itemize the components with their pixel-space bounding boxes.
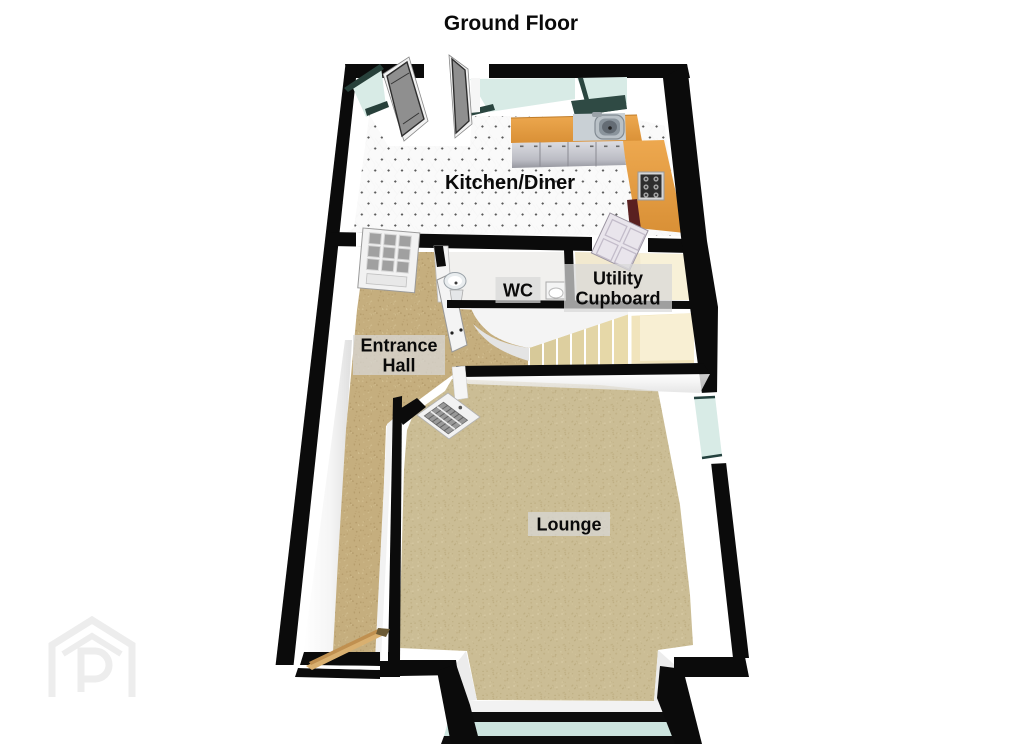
svg-text:Kitchen/Diner: Kitchen/Diner (445, 172, 575, 194)
svg-text:Lounge: Lounge (537, 515, 602, 535)
svg-text:Utility: Utility (593, 269, 643, 289)
svg-text:Ground Floor: Ground Floor (444, 12, 578, 35)
svg-text:Cupboard: Cupboard (576, 289, 661, 309)
svg-text:Entrance: Entrance (360, 336, 437, 356)
svg-text:Hall: Hall (382, 356, 415, 376)
svg-text:WC: WC (503, 281, 533, 301)
